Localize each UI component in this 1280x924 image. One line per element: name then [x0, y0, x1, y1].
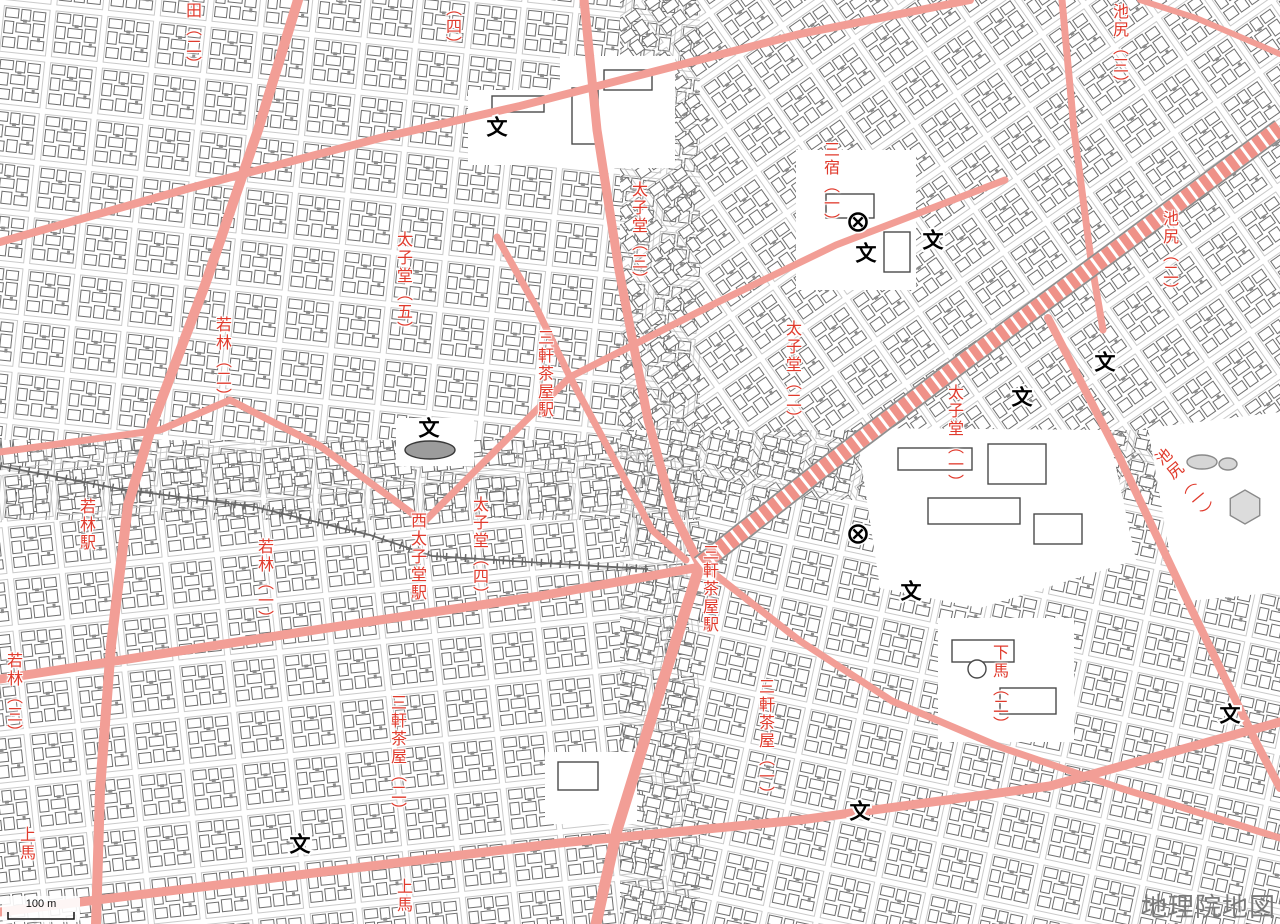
school-icon: 文	[419, 417, 441, 441]
building-footprint	[558, 762, 598, 790]
scale-label: 100 m	[26, 899, 57, 910]
building-footprint	[1034, 514, 1082, 544]
building-footprint	[898, 448, 972, 470]
school-icon: 文	[1095, 351, 1117, 375]
school-icon: 文	[850, 800, 872, 824]
scale-line	[6, 911, 76, 920]
building-footprint	[988, 444, 1046, 484]
building-footprint	[884, 232, 910, 272]
school-icon: 文	[290, 833, 312, 857]
building-footprint	[952, 640, 1014, 662]
school-icon: 文	[487, 116, 509, 140]
pond	[405, 441, 455, 459]
school-icon: 文	[1220, 703, 1242, 727]
school-icon: 文	[1012, 386, 1034, 410]
building-footprint	[968, 660, 986, 678]
pond	[1187, 455, 1217, 469]
school-icon: 文	[856, 242, 878, 266]
map-canvas[interactable]: 文文文文文文文文文文	[0, 0, 1280, 924]
school-icon: 文	[901, 580, 923, 604]
attribution-watermark[interactable]: 地理院地図	[1141, 887, 1276, 924]
pond	[1219, 458, 1237, 470]
building-footprint	[928, 498, 1020, 524]
school-icon: 文	[923, 229, 945, 253]
map-viewport[interactable]: 文文文文文文文文文文 代田（二）（四）太子堂（三）三宿（一）池尻（三）池尻（二）…	[0, 0, 1280, 924]
building-footprint	[1000, 688, 1056, 714]
scale-bar: 100 m	[2, 896, 80, 922]
open-area	[938, 618, 1074, 742]
